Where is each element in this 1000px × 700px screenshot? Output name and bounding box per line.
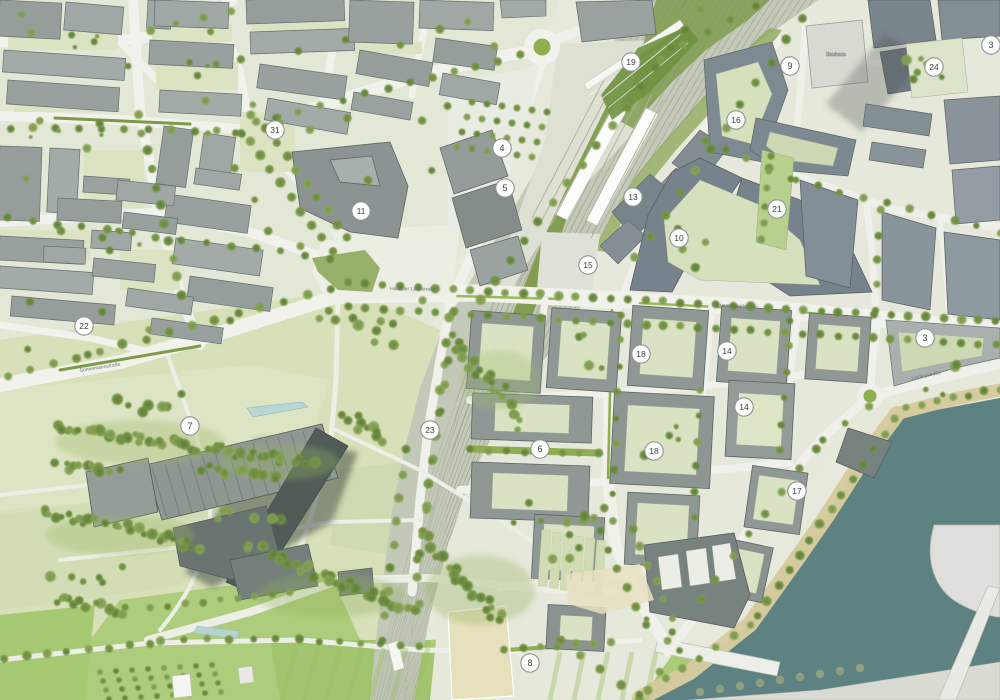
svg-text:19: 19: [626, 57, 636, 67]
svg-text:16: 16: [731, 115, 741, 125]
svg-text:Bauhaus: Bauhaus: [826, 52, 846, 58]
svg-text:3: 3: [922, 333, 927, 343]
svg-text:17: 17: [792, 486, 802, 496]
svg-text:7: 7: [187, 421, 192, 431]
svg-text:5: 5: [502, 183, 507, 193]
svg-text:15: 15: [583, 260, 593, 270]
svg-text:24: 24: [929, 62, 939, 72]
svg-text:3: 3: [988, 40, 993, 50]
svg-text:13: 13: [628, 192, 638, 202]
svg-text:18: 18: [636, 349, 646, 359]
svg-text:10: 10: [674, 233, 684, 243]
svg-text:11: 11: [357, 206, 366, 216]
svg-text:31: 31: [270, 125, 280, 135]
svg-text:4: 4: [499, 143, 504, 153]
svg-text:14: 14: [722, 346, 732, 356]
svg-text:22: 22: [79, 321, 89, 331]
svg-text:6: 6: [537, 444, 542, 454]
svg-text:18: 18: [649, 446, 659, 456]
svg-text:14: 14: [739, 402, 749, 412]
svg-text:21: 21: [772, 204, 782, 214]
svg-text:8: 8: [527, 658, 532, 668]
svg-text:9: 9: [787, 61, 792, 71]
svg-text:23: 23: [425, 425, 435, 435]
svg-text:Hanauer Landstraße: Hanauer Landstraße: [390, 286, 436, 293]
